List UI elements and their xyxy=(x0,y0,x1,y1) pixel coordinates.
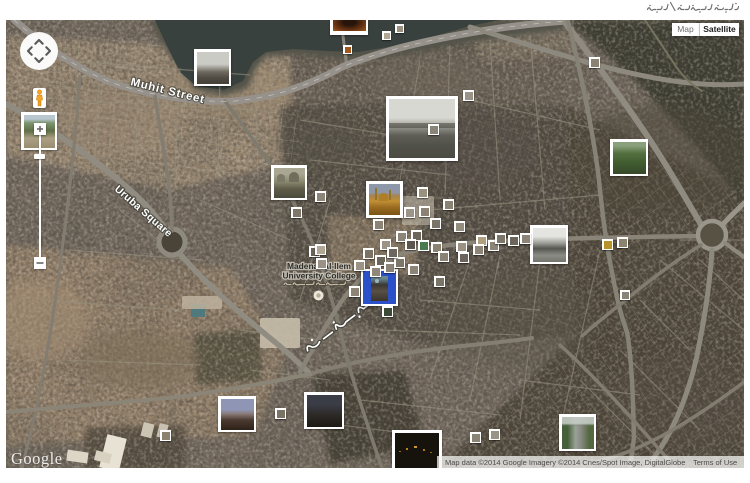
svg-text:University College: University College xyxy=(282,271,355,281)
